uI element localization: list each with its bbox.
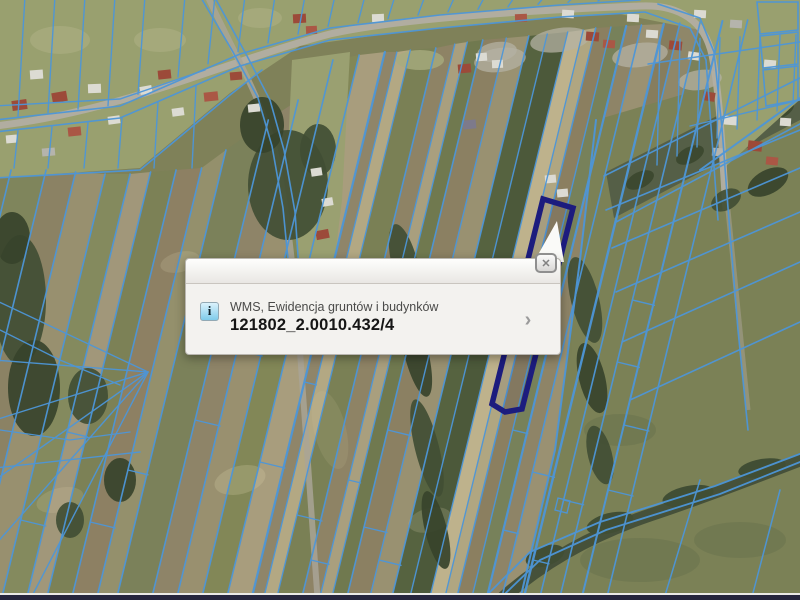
map-viewport[interactable]: ✕ i WMS, Ewidencja gruntów i budynków 12… (0, 0, 800, 600)
layer-title: WMS, Ewidencja gruntów i budynków (230, 300, 438, 314)
popup-header[interactable] (186, 259, 560, 284)
bottom-taskbar-edge (0, 593, 800, 600)
details-chevron-icon[interactable]: › (518, 309, 538, 331)
popup-content: i WMS, Ewidencja gruntów i budynków 1218… (186, 284, 560, 335)
info-icon: i (200, 302, 219, 321)
close-icon[interactable]: ✕ (535, 253, 557, 273)
parcel-id: 121802_2.0010.432/4 (230, 316, 438, 335)
feature-info-popup: ✕ i WMS, Ewidencja gruntów i budynków 12… (185, 258, 561, 355)
